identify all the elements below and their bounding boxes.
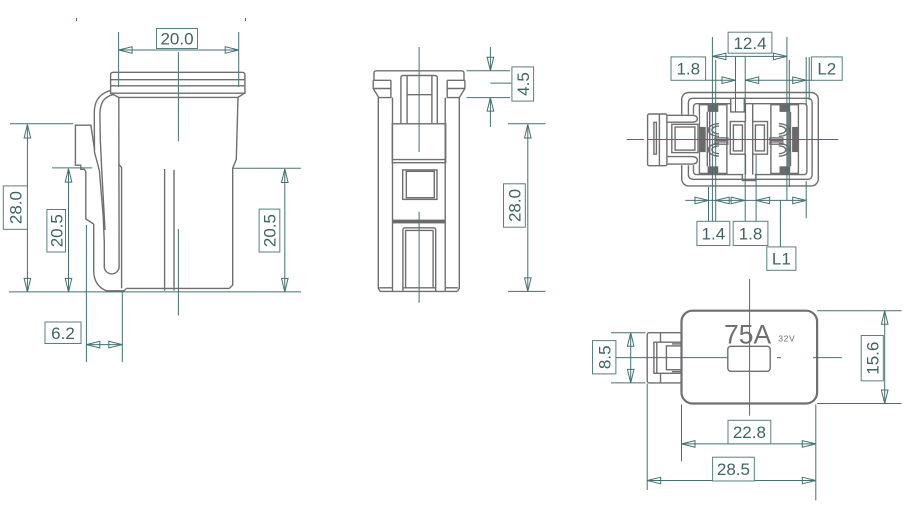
svg-text:8.5: 8.5 [595, 345, 614, 369]
svg-text:4.5: 4.5 [514, 72, 533, 96]
svg-text:15.6: 15.6 [863, 342, 882, 375]
svg-text:6.2: 6.2 [51, 324, 75, 343]
svg-text:1.8: 1.8 [676, 60, 700, 79]
svg-text:L2: L2 [817, 60, 836, 79]
svg-text:1.4: 1.4 [702, 225, 726, 244]
svg-text:28.5: 28.5 [717, 460, 750, 479]
svg-text:1.8: 1.8 [739, 225, 763, 244]
svg-text:20.5: 20.5 [261, 214, 280, 247]
svg-text:75A: 75A [724, 319, 771, 349]
svg-text:28.0: 28.0 [6, 191, 25, 224]
svg-text:L1: L1 [772, 250, 791, 269]
svg-text:32V: 32V [778, 334, 795, 344]
svg-text:20.5: 20.5 [47, 214, 66, 247]
svg-text:20.0: 20.0 [160, 30, 193, 49]
svg-text:22.8: 22.8 [733, 423, 766, 442]
svg-text:12.4: 12.4 [733, 34, 766, 53]
svg-text:28.0: 28.0 [506, 189, 525, 222]
